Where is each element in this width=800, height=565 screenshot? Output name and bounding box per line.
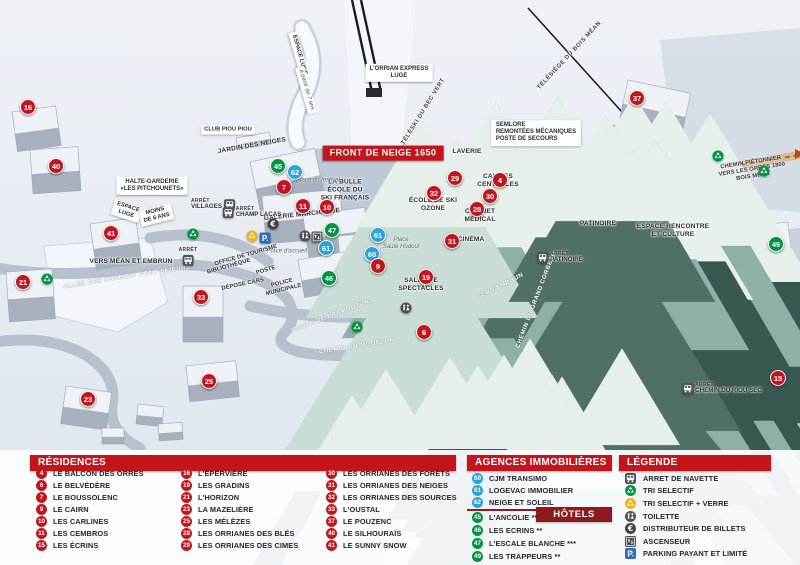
- map-overlay: FRONT DE NEIGE 1650ESPACE LUGEà partir d…: [0, 0, 800, 450]
- arret-label: ARRÊT: [179, 248, 198, 253]
- recycle-green-icon: [352, 322, 363, 333]
- map-label: TÉLÉSKI DU BEC VERT: [401, 77, 448, 146]
- legend-item: 40LE SILHOURAÏS: [326, 527, 457, 539]
- legend-item: 23LA MAZELIÈRE: [181, 504, 298, 516]
- map-badge-10: 10: [319, 199, 335, 215]
- legend-item-label: LE POUZENC: [343, 517, 392, 526]
- wc-icon: [300, 231, 311, 242]
- bus-stop: ARRÊT: [179, 248, 198, 266]
- map-badge-28: 28: [469, 201, 485, 217]
- map-label: CHEMIN DU MOUFLON: [319, 337, 395, 356]
- legend-item-badge: 30: [326, 468, 337, 479]
- map-label: TÉLÉSIÈGE DU BOIS MÉAN: [536, 20, 603, 91]
- legend-item: 11LES CEMBROS: [36, 527, 144, 539]
- residences-column-1: 4LE BALCON DES ORRES6LE BELVÉDÈRE7LE BOU…: [36, 468, 144, 551]
- legend-item: 49LES TRAPPEURS **: [472, 550, 576, 563]
- bus-icon: [682, 384, 693, 395]
- legend-item: P.PARKING PAYANT ET LIMITÉ: [625, 548, 747, 561]
- legend-item-label: LE BOUSSOLENC: [53, 493, 118, 502]
- legend-item: 25LES MÉLÈZES: [181, 516, 298, 528]
- legend-item: 21L'HORIZON: [181, 492, 298, 504]
- legend-item: 41LE SUNNY SNOW: [326, 539, 457, 551]
- bus-icon: [182, 255, 193, 266]
- euro-icon: €: [268, 219, 279, 230]
- legend-item-badge: 40: [326, 528, 337, 539]
- legend-item-badge: 29: [181, 540, 192, 551]
- legende-header: LÉGENDE: [619, 455, 771, 471]
- legend-item-badge: 33: [326, 504, 337, 515]
- bus-icon: [625, 473, 636, 484]
- legend-item-badge: 19: [181, 480, 192, 491]
- svg-text:P.: P.: [262, 234, 269, 243]
- legend-item-badge: 23: [181, 504, 192, 515]
- legend-item: 31LES ORRIANES DES NEIGES: [326, 480, 457, 492]
- map-badge-41: 41: [103, 225, 119, 241]
- bus-icon: [223, 208, 234, 219]
- bus-stop: ARRÊTVILLAGES: [191, 199, 235, 211]
- legend-item-label: LES ORRIANES DES BLÉS: [198, 529, 295, 538]
- map-badge-7: 7: [276, 179, 292, 195]
- residences-column-3: 30LES ORRIANES DES FORÊTS31LES ORRIANES …: [326, 468, 457, 551]
- legend-item-label: PARKING PAYANT ET LIMITÉ: [643, 549, 747, 558]
- legend-item: TRI SELECTIF + VERRE: [625, 497, 747, 510]
- residences-column-2: 16L'ÉPERVIÈRE19LES GRADINS21L'HORIZON23L…: [181, 468, 298, 551]
- map-label: Place Saute Hodoul: [383, 237, 419, 251]
- recycle-yellow-icon: [625, 498, 636, 509]
- recycle-green-icon: [713, 151, 724, 162]
- recycle-green-icon: [759, 166, 770, 177]
- map-label: CHEMIN DU GRAND CORBEAU: [515, 250, 559, 349]
- map-badge-33: 33: [193, 289, 209, 305]
- map-badge-6: 6: [416, 324, 432, 340]
- legend-item-badge: 32: [326, 492, 337, 503]
- map-label: L'ORRIAN EXPRESS LUGE: [366, 64, 433, 82]
- map-badge-16: 16: [20, 99, 36, 115]
- legend-item: 46LES ECRINS **: [472, 524, 576, 537]
- legend-item-label: L'OUSTAL: [343, 505, 380, 514]
- map-label: CINÉMA: [458, 236, 485, 244]
- agences-header: AGENCES IMMOBILIÈRES: [467, 455, 612, 471]
- legend-item-label: ARRET DE NAVETTE: [643, 474, 718, 483]
- map-badge-31: 31: [444, 233, 460, 249]
- legend-item-label: LES ECRINS **: [489, 526, 542, 535]
- legend-item-label: LE CAIRN: [53, 505, 89, 514]
- stop-name: CHEMIN DU RIOU SEC: [695, 388, 762, 395]
- map-badge-15: 15: [770, 370, 786, 386]
- recycle-green-icon: [625, 485, 636, 496]
- map-badge-9: 9: [370, 258, 386, 274]
- svg-text:€: €: [627, 524, 633, 533]
- bus-stop: ARRÊTPATINOIRE: [537, 252, 583, 264]
- legend-item: 32LES ORRIANES DES SOURCES: [326, 492, 457, 504]
- legend-item-badge: 15: [36, 540, 47, 551]
- svg-text:P.: P.: [627, 550, 634, 559]
- legend-item-badge: 28: [181, 528, 192, 539]
- map-badge-61: 61: [370, 227, 386, 243]
- legend-item: 60CJM TRANSIMO: [472, 472, 573, 484]
- legend-item-badge: 61: [472, 485, 483, 496]
- legend-item: TRI SELECTIF: [625, 485, 747, 498]
- map-badge-61: 61: [318, 240, 334, 256]
- legend-item-badge: 41: [326, 540, 337, 551]
- legend-item: 45L'ANCOLIE **: [472, 511, 576, 524]
- svg-text:€: €: [269, 220, 275, 229]
- legend-item: 10LES CARLINES: [36, 516, 144, 528]
- legend-item-badge: 7: [36, 492, 47, 503]
- legend-item-label: LES ORRIANES DES SOURCES: [343, 493, 457, 502]
- map-badge-62: 62: [287, 164, 303, 180]
- legend-item-label: LE BALCON DES ORRES: [53, 469, 144, 478]
- map-label: BIBLIOTHÈQUE: [206, 257, 251, 276]
- legend-item-label: L'HORIZON: [198, 493, 239, 502]
- map-badge-47: 47: [324, 222, 340, 238]
- map-badge-21: 21: [15, 274, 31, 290]
- bus-stop: ARRÊTCHAMP LACAS: [223, 207, 282, 219]
- legend-item-badge: 6: [36, 480, 47, 491]
- legend-item-label: LES ORRIANES DES NEIGES: [343, 481, 448, 490]
- legend-item: 61LOGEVAC IMMOBILIER: [472, 484, 573, 496]
- map-badge-37: 37: [629, 90, 645, 106]
- legend-item-badge: 47: [472, 538, 483, 549]
- legend-item: 9LE CAIRN: [36, 504, 144, 516]
- legend-item: TOILETTE: [625, 510, 747, 523]
- legend-item: 33L'OUSTAL: [326, 504, 457, 516]
- hotels-list: 45L'ANCOLIE **46LES ECRINS **47L'ESCALE …: [472, 511, 576, 563]
- legend-item-label: LES ORRIANES DES CIMES: [198, 541, 298, 550]
- wc-icon: [625, 511, 636, 522]
- map-label: DÉPOSE CARS: [221, 277, 265, 293]
- stop-name: VILLAGES: [191, 204, 222, 211]
- legend-item-label: LES TRAPPEURS **: [489, 552, 560, 561]
- legend-item-badge: 31: [326, 480, 337, 491]
- legend-item-label: LES ORRIANES DES FORÊTS: [343, 469, 450, 478]
- legend-item-label: L'ÉPERVIÈRE: [198, 469, 248, 478]
- map-label: POLICE MUNICIPALE: [264, 276, 303, 298]
- legend-panel: RÉSIDENCES AGENCES IMMOBILIÈRES LÉGENDE …: [0, 450, 800, 565]
- parking-icon: P.: [260, 233, 271, 244]
- legend-item-badge: 4: [36, 468, 47, 479]
- map-badge-23: 23: [80, 391, 96, 407]
- resort-map-page: .t1{color:#3a5852}.t2{color:#506f66}.t3{…: [0, 0, 800, 565]
- legend-item-label: DISTRIBUTEUR DE BILLETS: [643, 524, 746, 533]
- legend-item-label: LOGEVAC IMMOBILIER: [489, 486, 573, 495]
- arret-label: ARRÊT: [550, 252, 569, 257]
- wc-icon: [401, 303, 412, 314]
- agences-list: 60CJM TRANSIMO61LOGEVAC IMMOBILIER62NEIG…: [472, 472, 573, 509]
- legend-item: 29LES ORRIANES DES CIMES: [181, 539, 298, 551]
- legend-item-label: LES GRADINS: [198, 481, 250, 490]
- map-badge-49: 49: [768, 236, 784, 252]
- legend-item-label: TRI SELECTIF + VERRE: [643, 499, 729, 508]
- legend-item-label: TRI SELECTIF: [643, 486, 694, 495]
- legend-item: 7LE BOUSSOLENC: [36, 492, 144, 504]
- elevator-icon: [625, 536, 636, 547]
- map-badge-30: 30: [482, 188, 498, 204]
- bus-icon: [224, 200, 235, 211]
- map-label: CHEMIN PIÉTONNIER VERS LES ORRES 1800 BO…: [717, 154, 787, 185]
- legend-item-badge: 62: [472, 497, 483, 508]
- map-badge-40: 40: [48, 158, 64, 174]
- legend-item: 37LE POUZENC: [326, 516, 457, 528]
- legend-item: €DISTRIBUTEUR DE BILLETS: [625, 522, 747, 535]
- legend-item: 28LES ORRIANES DES BLÉS: [181, 527, 298, 539]
- recycle-green-icon: [188, 229, 199, 240]
- legend-item: 30LES ORRIANES DES FORÊTS: [326, 468, 457, 480]
- map-badge-4: 4: [492, 172, 508, 188]
- legend-item-label: TOILETTE: [643, 512, 679, 521]
- map-label: SEMLORE REMONTÉES MÉCANIQUES POSTE DE SE…: [491, 120, 581, 146]
- map-label: PONT SKIEURS: [139, 265, 192, 279]
- map-label: HALTE-GARDERIE «LES PITCHOUNETS»: [116, 177, 187, 195]
- recycle-green-icon: [42, 274, 53, 285]
- map-badge-29: 29: [447, 170, 463, 186]
- map-badge-11: 11: [295, 198, 311, 214]
- map-badge-25: 25: [201, 373, 217, 389]
- legend-item-badge: 37: [326, 516, 337, 527]
- map-label: LAVERIE: [452, 148, 481, 156]
- map-badge-45: 45: [270, 158, 286, 174]
- map-badge-19: 19: [418, 269, 434, 285]
- legend-item-badge: 60: [472, 473, 483, 484]
- legend-item: 6LE BELVÉDÈRE: [36, 480, 144, 492]
- arret-label: ARRÊT: [236, 207, 255, 212]
- euro-icon: €: [625, 523, 636, 534]
- legend-item-label: LE SILHOURAÏS: [343, 529, 401, 538]
- legend-item: 16L'ÉPERVIÈRE: [181, 468, 298, 480]
- legend-item-label: LES ÉCRINS: [53, 541, 98, 550]
- bus-stop: ARRÊTCHEMIN DU RIOU SEC: [682, 383, 762, 395]
- legend-item-badge: 49: [472, 551, 483, 562]
- map-label: Place d'accueil: [267, 248, 307, 255]
- bus-icon: [537, 253, 548, 264]
- legend-item-badge: 46: [472, 525, 483, 536]
- map-label: à partir de 7 ans: [295, 66, 317, 115]
- legend-item-label: LES CARLINES: [53, 517, 108, 526]
- legend-item-label: CJM TRANSIMO: [489, 474, 547, 483]
- legende-list: ARRET DE NAVETTETRI SELECTIFTRI SELECTIF…: [625, 472, 747, 560]
- legend-item-label: LE BELVÉDÈRE: [53, 481, 110, 490]
- legend-item-badge: 9: [36, 504, 47, 515]
- legend-item-label: ASCENSEUR: [643, 537, 690, 546]
- legend-item: 47L'ESCALE BLANCHE ***: [472, 537, 576, 550]
- legend-item-label: LES CEMBROS: [53, 529, 108, 538]
- legend-item-badge: 11: [36, 528, 47, 539]
- map-label: CLUB PIOU PIOU: [201, 126, 255, 135]
- arret-label: ARRÊT: [695, 383, 714, 388]
- legend-item: ASCENSEUR: [625, 535, 747, 548]
- map-badge-32: 32: [426, 185, 442, 201]
- map-label: ESPACE LUGE: [288, 31, 310, 79]
- arret-label: ARRÊT: [191, 199, 210, 204]
- map-label: Place du festival: [296, 177, 340, 184]
- map-badge-46: 46: [321, 270, 337, 286]
- map-label: JARDIN DES NEIGES: [217, 136, 286, 156]
- front-de-neige-banner: FRONT DE NEIGE 1650: [323, 146, 444, 161]
- map-label: ESPACE LUGE: [111, 199, 144, 223]
- legend-item-label: LES MÉLÈZES: [198, 517, 250, 526]
- map-label: VERS EMBRUN: [477, 272, 526, 302]
- map-label: PATINOIRE: [580, 220, 616, 228]
- legend-item-label: L'ESCALE BLANCHE ***: [489, 539, 576, 548]
- legend-item: 19LES GRADINS: [181, 480, 298, 492]
- legend-item-label: LE SUNNY SNOW: [343, 541, 407, 550]
- map-label: ALLÉE DES CHAMOIS: [63, 273, 137, 292]
- legend-item: 15LES ÉCRINS: [36, 539, 144, 551]
- legend-item: 4LE BALCON DES ORRES: [36, 468, 144, 480]
- stop-name: PATINOIRE: [550, 257, 583, 264]
- legend-item-badge: 45: [472, 512, 483, 523]
- parking-icon: P.: [625, 548, 636, 559]
- legend-item-label: L'ANCOLIE **: [489, 513, 538, 522]
- recycle-yellow-icon: [247, 231, 258, 242]
- legend-item-badge: 16: [181, 468, 192, 479]
- map-label: MOINS DE 6 ANS: [138, 203, 173, 226]
- map-label: ESPACE RENCONTRE ET CULTURE: [637, 223, 709, 239]
- map-label: OFFICE DE TOURISME: [214, 244, 278, 269]
- map-label: VERS MÉAN ET EMBRUN: [90, 258, 173, 266]
- legend-item-badge: 10: [36, 516, 47, 527]
- legend-item-badge: 21: [181, 492, 192, 503]
- legend-item: ARRET DE NAVETTE: [625, 472, 747, 485]
- map-label: POSTE: [255, 265, 276, 277]
- legend-item-badge: 25: [181, 516, 192, 527]
- legend-item-label: LA MAZELIÈRE: [198, 505, 254, 514]
